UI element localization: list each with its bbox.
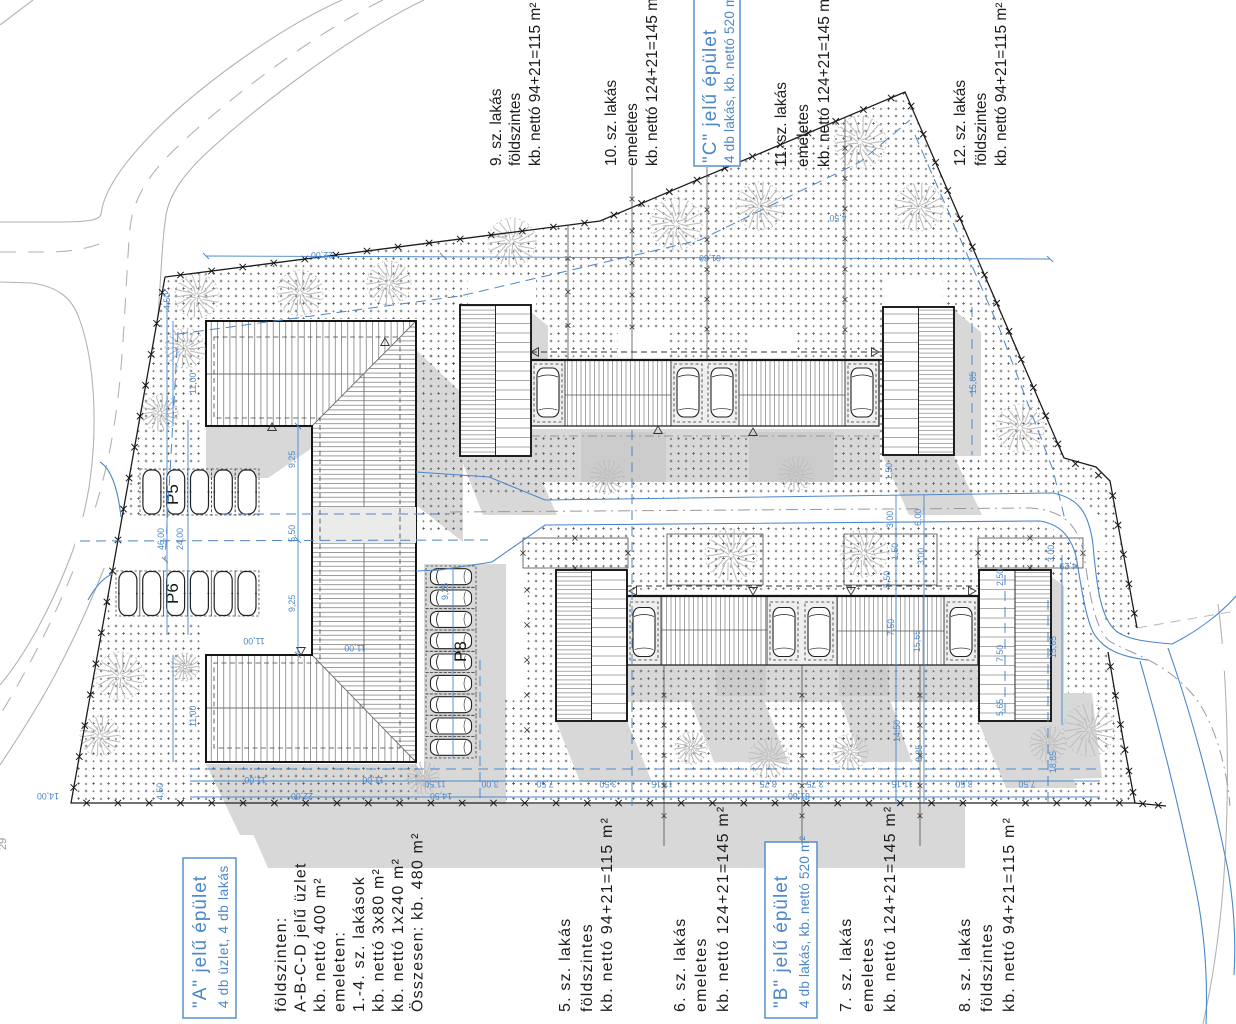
svg-text:6,00: 6,00	[913, 509, 923, 526]
svg-text:kb. nettó 124+21=145 m²: kb. nettó 124+21=145 m²	[644, 0, 661, 166]
svg-text:Összesen: kb. 480 m²: Összesen: kb. 480 m²	[409, 832, 427, 1012]
svg-text:4,29: 4,29	[1059, 561, 1076, 571]
svg-text:4 db lakás, kb. nettó 520 m²: 4 db lakás, kb. nettó 520 m²	[797, 836, 812, 1008]
svg-text:emeletes: emeletes	[795, 104, 812, 167]
svg-text:22,00: 22,00	[291, 791, 313, 801]
svg-text:3,00: 3,00	[1046, 545, 1056, 562]
svg-text:9. sz. lakás: 9. sz. lakás	[488, 88, 505, 166]
svg-text:5. sz. lakás: 5. sz. lakás	[557, 918, 574, 1012]
svg-text:P8: P8	[451, 641, 470, 662]
svg-text:3,00: 3,00	[916, 548, 926, 565]
svg-text:3,50: 3,50	[955, 779, 972, 789]
svg-text:11. sz. lakás: 11. sz. lakás	[773, 82, 790, 167]
svg-text:15,65: 15,65	[912, 630, 922, 652]
svg-text:3,75: 3,75	[759, 779, 776, 789]
svg-text:földszinten:: földszinten:	[273, 917, 290, 1012]
svg-text:7,50: 7,50	[536, 779, 553, 789]
svg-text:3,00: 3,00	[481, 779, 498, 789]
svg-text:"A" jelű épület: "A" jelű épület	[190, 875, 211, 1008]
svg-text:4 db lakás, kb. nettó 520 m²: 4 db lakás, kb. nettó 520 m²	[722, 0, 737, 163]
svg-text:9,25: 9,25	[287, 451, 297, 468]
svg-text:emeletes: emeletes	[693, 937, 710, 1012]
svg-text:7,50: 7,50	[886, 619, 896, 636]
svg-text:14,00: 14,00	[37, 791, 59, 801]
svg-text:11,00: 11,00	[188, 373, 198, 394]
svg-text:kb. nettó 94+21=115 m²: kb. nettó 94+21=115 m²	[599, 817, 616, 1012]
svg-text:5,65: 5,65	[995, 699, 1005, 716]
svg-text:emeleten:: emeleten:	[332, 931, 349, 1012]
svg-text:kb. nettó 124+21=145 m²: kb. nettó 124+21=145 m²	[882, 806, 899, 1012]
svg-text:emeletes: emeletes	[624, 103, 641, 166]
svg-text:5,50: 5,50	[287, 525, 297, 542]
svg-text:11,00: 11,00	[188, 706, 198, 727]
svg-text:emeletes: emeletes	[860, 937, 877, 1012]
svg-text:7,50: 7,50	[995, 645, 1005, 662]
svg-text:3,75: 3,75	[806, 779, 823, 789]
svg-text:földszintes: földszintes	[507, 93, 524, 166]
svg-text:4,50: 4,50	[829, 213, 846, 223]
svg-text:15,65: 15,65	[968, 372, 978, 394]
svg-text:24,00: 24,00	[175, 528, 185, 550]
svg-text:földszintes: földszintes	[979, 923, 996, 1012]
svg-text:7. sz. lakás: 7. sz. lakás	[838, 918, 855, 1012]
svg-text:1.-4. sz. lakások: 1.-4. sz. lakások	[351, 876, 368, 1012]
svg-text:A-B-C-D jelű üzlet: A-B-C-D jelű üzlet	[293, 862, 310, 1012]
svg-text:8,85: 8,85	[914, 745, 924, 762]
svg-text:11,15: 11,15	[891, 779, 912, 789]
svg-text:kb. nettó 94+21=115 m²: kb. nettó 94+21=115 m²	[993, 3, 1010, 166]
svg-text:61,80: 61,80	[788, 791, 810, 801]
svg-text:kb. nettó 124+21=145 m²: kb. nettó 124+21=145 m²	[816, 0, 833, 167]
svg-text:61,80: 61,80	[699, 253, 721, 263]
svg-text:14,50: 14,50	[892, 720, 902, 742]
svg-text:5,50: 5,50	[882, 571, 892, 588]
svg-text:kb. nettó 1x240 m²: kb. nettó 1x240 m²	[390, 858, 407, 1012]
svg-text:kb. nettó 124+21=145 m²: kb. nettó 124+21=145 m²	[715, 806, 732, 1012]
svg-text:22,00: 22,00	[311, 250, 333, 260]
svg-text:8. sz. lakás: 8. sz. lakás	[957, 918, 974, 1012]
svg-text:7,50: 7,50	[1018, 779, 1035, 789]
svg-text:29: 29	[0, 838, 9, 850]
svg-text:1,50: 1,50	[884, 463, 894, 480]
svg-text:P6: P6	[163, 583, 182, 604]
svg-text:18,85: 18,85	[1048, 751, 1058, 773]
svg-text:11,00: 11,00	[362, 775, 383, 785]
svg-text:3,50: 3,50	[599, 779, 616, 789]
svg-text:4 db üzlet, 4 db lakás: 4 db üzlet, 4 db lakás	[216, 865, 231, 1008]
svg-text:2,50: 2,50	[995, 569, 1005, 586]
svg-text:11,15: 11,15	[651, 779, 672, 789]
svg-text:46,00: 46,00	[156, 528, 166, 550]
svg-text:14,50: 14,50	[430, 791, 452, 801]
svg-text:1,50: 1,50	[890, 543, 900, 560]
svg-text:15,65: 15,65	[1048, 636, 1058, 658]
svg-text:3,00: 3,00	[885, 511, 895, 528]
svg-text:4,50: 4,50	[155, 783, 165, 800]
svg-text:10. sz. lakás: 10. sz. lakás	[603, 80, 620, 166]
svg-text:kb. nettó 400 m²: kb. nettó 400 m²	[312, 877, 329, 1012]
svg-text:P5: P5	[163, 484, 182, 505]
svg-text:kb. nettó 94+21=115 m²: kb. nettó 94+21=115 m²	[1001, 817, 1018, 1012]
svg-text:4,50: 4,50	[162, 293, 172, 310]
svg-text:földszintes: földszintes	[579, 923, 596, 1012]
svg-text:"C" jelű épület: "C" jelű épület	[700, 29, 721, 163]
svg-text:9,25: 9,25	[287, 595, 297, 612]
svg-text:11,00: 11,00	[344, 643, 365, 653]
svg-text:12. sz. lakás: 12. sz. lakás	[952, 80, 969, 166]
svg-text:6. sz. lakás: 6. sz. lakás	[672, 918, 689, 1012]
svg-text:11,50: 11,50	[424, 779, 445, 789]
svg-text:"B" jelű épület: "B" jelű épület	[771, 875, 792, 1008]
svg-text:kb. nettó 3x80 m²: kb. nettó 3x80 m²	[371, 868, 388, 1012]
svg-text:11,00: 11,00	[243, 636, 264, 646]
svg-text:11,00: 11,00	[244, 775, 265, 785]
svg-text:9,25: 9,25	[440, 583, 450, 600]
svg-text:kb. nettó 94+21=115 m²: kb. nettó 94+21=115 m²	[527, 3, 544, 166]
svg-text:földszintes: földszintes	[973, 93, 990, 166]
